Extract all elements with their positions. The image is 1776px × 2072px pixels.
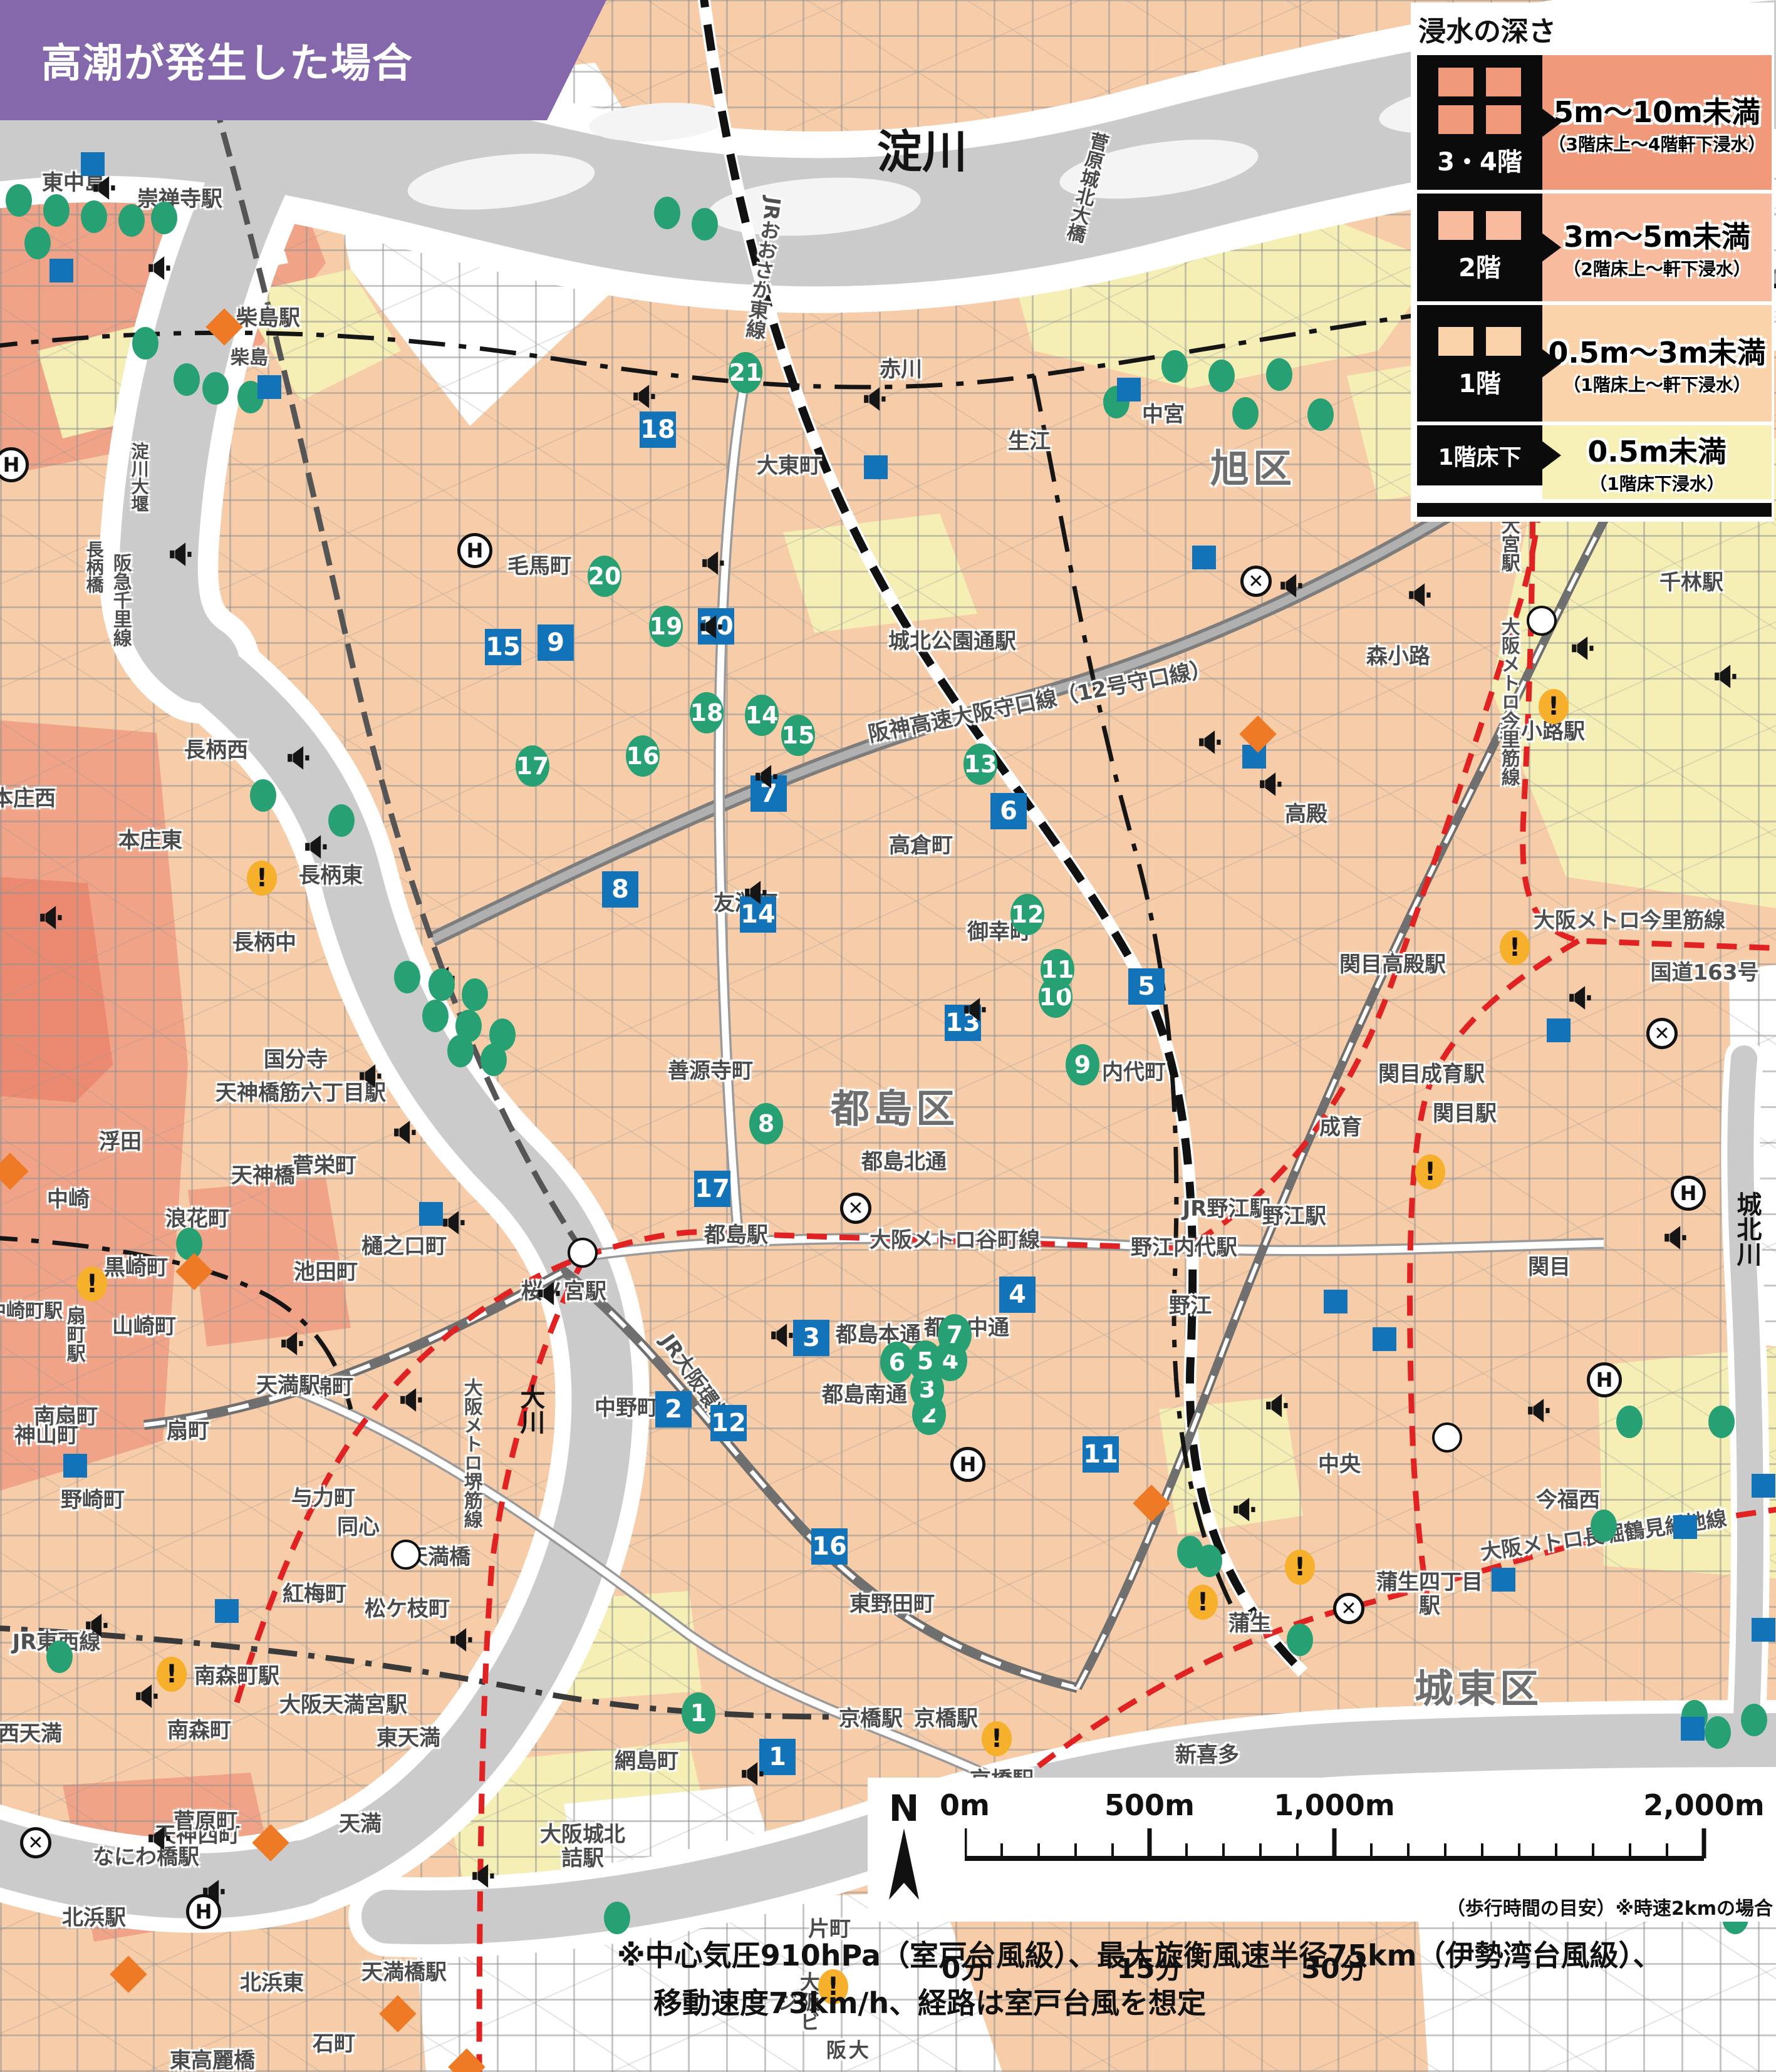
shelter-dot-marker bbox=[1161, 350, 1188, 383]
loudspeaker-marker bbox=[1278, 570, 1309, 601]
building-square-marker bbox=[1681, 1717, 1705, 1741]
building-square-marker bbox=[49, 259, 73, 282]
warning-icon: ! bbox=[982, 1721, 1012, 1756]
building-square-marker bbox=[63, 1454, 87, 1478]
warning-icon: ! bbox=[1415, 1154, 1445, 1189]
shelter-dot-marker bbox=[1266, 358, 1292, 391]
legend-floor-label: 2階 bbox=[1458, 247, 1501, 284]
map-label: 国道163号 bbox=[1651, 961, 1759, 985]
map-label: 新喜多 bbox=[1175, 1743, 1239, 1767]
loudspeaker-marker bbox=[1197, 727, 1228, 758]
map-label: 淀川 bbox=[877, 127, 967, 178]
loudspeaker-marker bbox=[536, 1278, 567, 1309]
map-label: 北浜東 bbox=[240, 1971, 304, 1995]
loudspeaker-icon bbox=[1712, 661, 1743, 692]
map-label: 毛馬町 bbox=[507, 554, 571, 578]
green-numbered-marker: 18 bbox=[690, 692, 724, 733]
map-label: 浮田 bbox=[99, 1130, 142, 1154]
map-label: 黒崎町 bbox=[104, 1256, 168, 1280]
map-label: 都島南通 bbox=[822, 1383, 907, 1407]
loudspeaker-marker bbox=[83, 1610, 115, 1641]
legend-depth-note: （1階床下浸水） bbox=[1542, 470, 1772, 495]
green-numbered-marker: 20 bbox=[588, 556, 621, 597]
loudspeaker-icon bbox=[146, 1823, 177, 1854]
map-label: 森小路 bbox=[1366, 645, 1430, 668]
warning-icon: ! bbox=[1539, 689, 1569, 724]
shelter-dot-marker bbox=[654, 197, 680, 229]
building-square-marker bbox=[1373, 1327, 1396, 1351]
warning-icon: ! bbox=[1285, 1550, 1315, 1585]
loudspeaker-marker bbox=[38, 902, 69, 933]
loudspeaker-marker bbox=[753, 761, 784, 792]
loudspeaker-icon bbox=[146, 252, 177, 284]
hospital-icon: H bbox=[186, 1894, 221, 1929]
building-square-marker bbox=[1192, 546, 1216, 569]
blue-numbered-marker: 4 bbox=[999, 1277, 1036, 1313]
map-label: 山崎町 bbox=[112, 1315, 176, 1339]
loudspeaker-icon bbox=[448, 1624, 479, 1655]
warning-icon: ! bbox=[247, 861, 277, 896]
loudspeaker-icon bbox=[769, 1320, 800, 1351]
loudspeaker-icon bbox=[1569, 633, 1601, 664]
scale-ticks bbox=[965, 1826, 1716, 1863]
map-label: 大阪天満宮駅 bbox=[279, 1693, 407, 1717]
blue-numbered-marker: 5 bbox=[1128, 968, 1165, 1005]
map-label: 千林駅 bbox=[1659, 571, 1723, 594]
loudspeaker-marker bbox=[742, 877, 774, 908]
loudspeaker-icon bbox=[83, 1610, 115, 1641]
shelter-dot-marker bbox=[46, 1640, 73, 1673]
legend-depth-band: 0.5m〜3m未満（1階床上〜軒下浸水） bbox=[1542, 305, 1772, 422]
map-label: 中崎町駅 bbox=[0, 1301, 63, 1322]
loudspeaker-icon bbox=[962, 994, 993, 1025]
map-label: 淀川大堰 bbox=[129, 442, 148, 512]
scale-meter-labels: 0m500m1,000m2,000m bbox=[965, 1788, 1716, 1826]
shelter-dot-marker bbox=[394, 961, 420, 993]
green-numbered-marker: 19 bbox=[649, 606, 683, 647]
map-label: 野崎町 bbox=[61, 1488, 125, 1512]
shelter-dot-marker bbox=[132, 327, 158, 360]
map-label: 菅栄町 bbox=[293, 1154, 356, 1178]
loudspeaker-icon bbox=[861, 383, 893, 415]
map-label: 北浜駅 bbox=[62, 1906, 126, 1930]
loudspeaker-icon bbox=[279, 1328, 310, 1359]
green-numbered-marker: 16 bbox=[626, 735, 660, 777]
station-dot bbox=[568, 1238, 598, 1268]
map-label: 樋之口町 bbox=[361, 1235, 447, 1258]
map-label: 与力町 bbox=[291, 1486, 355, 1510]
hazard-map-page: 淀川寝屋川城北川大川都島区旭区城東区東中島崇禅寺駅柴島駅柴島淀川大堰長柄橋阪急千… bbox=[0, 0, 1776, 2072]
loudspeaker-icon bbox=[398, 1384, 429, 1416]
shelter-dot-marker bbox=[151, 202, 177, 234]
map-label: 天満駅 bbox=[256, 1374, 320, 1397]
loudspeaker-marker bbox=[962, 994, 993, 1025]
loudspeaker-marker bbox=[279, 1328, 310, 1359]
loudspeaker-marker bbox=[392, 1117, 423, 1148]
legend-depth-band: 3m〜5m未満（2階床上〜軒下浸水） bbox=[1542, 194, 1772, 301]
crossed-circle-icon: ✕ bbox=[1240, 566, 1272, 597]
legend-depth-range: 5m〜10m未満 bbox=[1542, 90, 1772, 131]
shelter-dot-marker bbox=[1307, 398, 1334, 431]
loudspeaker-marker bbox=[700, 547, 731, 579]
shelter-dot-marker bbox=[1232, 397, 1259, 430]
blue-numbered-marker: 16 bbox=[811, 1528, 848, 1565]
loudspeaker-icon bbox=[742, 877, 774, 908]
loudspeaker-marker bbox=[146, 252, 177, 284]
station-dot bbox=[1527, 606, 1557, 636]
loudspeaker-icon bbox=[1525, 1395, 1557, 1426]
map-label: 京橋駅 bbox=[839, 1707, 903, 1731]
map-label: 本庄西 bbox=[0, 787, 56, 811]
shelter-dot-marker bbox=[176, 1228, 202, 1260]
map-label: 中宮 bbox=[1142, 403, 1185, 427]
legend-depth-range: 0.5m未満 bbox=[1542, 429, 1772, 470]
map-label: 中野町 bbox=[595, 1396, 658, 1420]
loudspeaker-marker bbox=[1406, 579, 1438, 611]
north-arrow: N bbox=[886, 1790, 922, 1904]
map-label: 大阪メトロ谷町線 bbox=[870, 1228, 1040, 1252]
north-arrow-icon bbox=[886, 1826, 922, 1902]
blue-numbered-marker: 18 bbox=[640, 412, 676, 448]
shelter-dot-marker bbox=[1741, 1704, 1767, 1736]
legend-depth-band: 5m〜10m未満（3階床上〜4階軒下浸水） bbox=[1542, 55, 1772, 190]
hospital-icon: H bbox=[1671, 1176, 1706, 1211]
map-label: 高殿 bbox=[1285, 802, 1327, 826]
loudspeaker-icon bbox=[303, 831, 334, 862]
building-square-marker bbox=[1752, 1618, 1775, 1642]
loudspeaker-marker bbox=[440, 1207, 472, 1238]
loudspeaker-icon bbox=[739, 1758, 771, 1790]
map-label: 菅原町 bbox=[174, 1810, 237, 1833]
loudspeaker-marker bbox=[167, 539, 199, 570]
loudspeaker-marker bbox=[146, 1823, 177, 1854]
map-label: 旭区 bbox=[1210, 447, 1296, 490]
map-label: 扇町駅 bbox=[63, 1306, 85, 1362]
loudspeaker-marker bbox=[448, 1624, 479, 1655]
loudspeaker-icon bbox=[700, 547, 731, 579]
map-label: 大阪メトロ今里筋線 bbox=[1534, 909, 1725, 933]
shelter-dot-marker bbox=[604, 1902, 630, 1934]
green-numbered-marker: 7 bbox=[938, 1314, 972, 1355]
map-label: 赤川 bbox=[880, 358, 922, 381]
loudspeaker-icon bbox=[1257, 769, 1289, 800]
map-label: 京橋駅 bbox=[914, 1707, 978, 1731]
legend-title: 浸水の深さ bbox=[1418, 9, 1772, 49]
map-label: 石町 bbox=[313, 2032, 355, 2056]
loudspeaker-marker bbox=[1257, 769, 1289, 800]
loudspeaker-icon bbox=[1197, 727, 1228, 758]
warning-icon: ! bbox=[1188, 1585, 1218, 1620]
scale-meter-label: 1,000m bbox=[1274, 1788, 1394, 1822]
green-numbered-marker: 1 bbox=[682, 1692, 715, 1734]
map-label: JR野江駅 bbox=[1183, 1197, 1271, 1221]
scale-meter-label: 500m bbox=[1104, 1788, 1195, 1822]
green-numbered-marker: 12 bbox=[1010, 894, 1044, 935]
warning-icon: ! bbox=[157, 1657, 187, 1692]
shelter-dot-marker bbox=[1287, 1624, 1313, 1656]
loudspeaker-marker bbox=[1569, 633, 1601, 664]
crossed-circle-icon: ✕ bbox=[1333, 1593, 1364, 1624]
loudspeaker-icon bbox=[38, 902, 69, 933]
loudspeaker-icon bbox=[167, 539, 199, 570]
map-label: 大阪 bbox=[823, 2038, 868, 2061]
shelter-dot-marker bbox=[447, 1035, 474, 1067]
blue-numbered-marker: 12 bbox=[710, 1405, 747, 1441]
blue-numbered-marker: 6 bbox=[990, 793, 1027, 829]
shelter-dot-marker bbox=[1591, 1510, 1617, 1542]
legend-depth-band: 0.5m未満（1階床下浸水） bbox=[1542, 425, 1772, 499]
shelter-dot-marker bbox=[81, 200, 107, 233]
loudspeaker-marker bbox=[1264, 1390, 1295, 1421]
blue-numbered-marker: 11 bbox=[1083, 1436, 1119, 1473]
loudspeaker-marker bbox=[357, 1060, 388, 1092]
building-square-marker bbox=[1117, 378, 1141, 401]
building-square-marker bbox=[215, 1599, 239, 1623]
map-label: 蒲生 bbox=[1228, 1612, 1271, 1635]
green-numbered-marker: 13 bbox=[963, 743, 997, 785]
legend-floor-label: 1階 bbox=[1458, 363, 1501, 400]
loudspeaker-icon bbox=[1231, 1494, 1262, 1525]
green-numbered-marker: 21 bbox=[729, 352, 762, 393]
green-numbered-marker: 14 bbox=[745, 695, 779, 736]
loudspeaker-marker bbox=[1662, 1222, 1693, 1253]
building-square-marker bbox=[864, 455, 888, 479]
warning-icon: ! bbox=[77, 1267, 107, 1302]
map-label: 都島区 bbox=[831, 1087, 958, 1130]
map-label: 長柄中 bbox=[232, 931, 296, 955]
map-label: 関目駅 bbox=[1433, 1102, 1497, 1126]
map-label: 善源寺町 bbox=[668, 1059, 753, 1083]
legend-depth-note: （2階床上〜軒下浸水） bbox=[1542, 256, 1772, 281]
loudspeaker-icon bbox=[1278, 570, 1309, 601]
loudspeaker-icon bbox=[91, 172, 122, 204]
shelter-dot-marker bbox=[1208, 360, 1235, 392]
map-label: 東天満 bbox=[376, 1726, 440, 1750]
shelter-dot-marker bbox=[422, 1000, 449, 1032]
green-numbered-marker: 9 bbox=[1066, 1044, 1099, 1085]
legend-floor-label: 1階床下 bbox=[1438, 439, 1521, 472]
map-label: 西天満 bbox=[0, 1722, 62, 1746]
building-icon: 2階 bbox=[1417, 194, 1542, 301]
map-label: 長柄西 bbox=[184, 738, 248, 762]
loudspeaker-marker bbox=[303, 831, 334, 862]
map-label: 国分寺 bbox=[264, 1048, 328, 1072]
crossed-circle-icon: ✕ bbox=[1646, 1018, 1678, 1049]
map-label: 関目 bbox=[1528, 1255, 1571, 1279]
scale-bar: 0m500m1,000m2,000m 0分15分30分 bbox=[965, 1788, 1716, 1866]
shelter-dot-marker bbox=[174, 363, 200, 396]
blue-numbered-marker: 17 bbox=[694, 1171, 730, 1207]
building-square-marker bbox=[1752, 1474, 1775, 1498]
shelter-dot-marker bbox=[1708, 1406, 1735, 1438]
hospital-icon: H bbox=[457, 533, 492, 568]
map-label: 崇禅寺駅 bbox=[137, 187, 222, 211]
map-label: 同心 bbox=[337, 1515, 380, 1539]
scale-note: （歩行時間の目安）※時速2kmの場合 bbox=[1446, 1893, 1773, 1920]
loudspeaker-marker bbox=[861, 383, 893, 415]
map-label: 都島駅 bbox=[704, 1223, 768, 1247]
map-label: 関目成育駅 bbox=[1378, 1062, 1485, 1086]
map-label: 天神橋 bbox=[231, 1164, 295, 1188]
map-label: 都島本通 bbox=[836, 1323, 921, 1347]
map-label: 東高麗橋 bbox=[170, 2049, 255, 2072]
building-square-marker bbox=[1547, 1018, 1571, 1042]
building-square-marker bbox=[1324, 1290, 1348, 1313]
loudspeaker-marker bbox=[1231, 1494, 1262, 1525]
shelter-dot-marker bbox=[428, 968, 455, 1001]
scale-meter-label: 2,000m bbox=[1643, 1788, 1764, 1822]
crossed-circle-icon: ✕ bbox=[840, 1193, 871, 1224]
map-label: 本庄東 bbox=[118, 829, 182, 852]
building-square-marker bbox=[1673, 1515, 1697, 1539]
building-icon: 3・4階 bbox=[1417, 55, 1542, 190]
map-label: 大阪城北詰駅 bbox=[536, 1823, 630, 1870]
loudspeaker-icon bbox=[392, 1117, 423, 1148]
north-label: N bbox=[886, 1790, 922, 1826]
loudspeaker-marker bbox=[1567, 982, 1598, 1013]
loudspeaker-icon bbox=[470, 1860, 501, 1892]
loudspeaker-icon bbox=[753, 761, 784, 792]
shelter-dot-marker bbox=[6, 184, 32, 217]
banner-title: 高潮が発生した場合 bbox=[0, 31, 413, 89]
shelter-dot-marker bbox=[462, 978, 488, 1011]
loudspeaker-icon bbox=[631, 381, 662, 412]
footnote-line1: ※中心気圧910hPa（室戸台風級）、最大旋衡風速半径75km（伊勢湾台風級）、 bbox=[617, 1932, 1662, 1980]
map-label: 中崎 bbox=[47, 1188, 90, 1211]
loudspeaker-icon bbox=[536, 1278, 567, 1309]
shelter-dot-marker bbox=[24, 227, 51, 259]
shelter-dot-marker bbox=[328, 804, 355, 837]
map-label: 城東区 bbox=[1415, 1667, 1542, 1710]
shelter-dot-marker bbox=[202, 372, 229, 405]
loudspeaker-icon bbox=[1264, 1390, 1295, 1421]
hospital-icon: H bbox=[1587, 1362, 1622, 1397]
map-label: 大川 bbox=[516, 1384, 544, 1434]
building-square-marker bbox=[257, 375, 281, 399]
green-numbered-marker: 6 bbox=[880, 1342, 914, 1383]
scale-meter-label: 0m bbox=[940, 1788, 990, 1822]
footnote-line2: 移動速度73km/h、経路は室戸台風を想定 bbox=[617, 1980, 1662, 2028]
storm-surge-banner: 高潮が発生した場合 bbox=[0, 0, 606, 120]
loudspeaker-marker bbox=[769, 1320, 800, 1351]
map-label: 池田町 bbox=[294, 1260, 358, 1284]
building-square-marker bbox=[81, 152, 105, 176]
map-label: 成育 bbox=[1319, 1116, 1362, 1139]
hospital-icon: H bbox=[950, 1447, 985, 1482]
legend-bottom-bar bbox=[1417, 503, 1772, 517]
map-label: 都島北通 bbox=[861, 1150, 947, 1174]
map-label: 南森町 bbox=[167, 1719, 231, 1743]
map-label: 紅梅町 bbox=[283, 1582, 346, 1606]
building-square-marker bbox=[1492, 1568, 1515, 1592]
loudspeaker-marker bbox=[91, 172, 122, 204]
loudspeaker-icon bbox=[285, 742, 316, 774]
blue-numbered-marker: 2 bbox=[655, 1391, 692, 1427]
green-numbered-marker: 11 bbox=[1041, 949, 1074, 990]
loudspeaker-marker bbox=[398, 1384, 429, 1416]
map-label: 高倉町 bbox=[889, 834, 953, 857]
station-dot bbox=[391, 1540, 421, 1570]
map-label: 網島町 bbox=[615, 1749, 678, 1773]
green-numbered-marker: 8 bbox=[749, 1103, 783, 1144]
map-label: 松ケ枝町 bbox=[365, 1597, 450, 1621]
map-label: 城北川 bbox=[1733, 1191, 1761, 1267]
legend-row: 1階0.5m〜3m未満（1階床上〜軒下浸水） bbox=[1417, 305, 1772, 422]
loudspeaker-icon bbox=[440, 1207, 472, 1238]
legend-row: 2階3m〜5m未満（2階床上〜軒下浸水） bbox=[1417, 194, 1772, 301]
map-label: 浪花町 bbox=[165, 1207, 229, 1231]
loudspeaker-icon bbox=[357, 1060, 388, 1092]
crossed-circle-icon: ✕ bbox=[20, 1827, 51, 1858]
map-label: 野江内代駅 bbox=[1131, 1236, 1237, 1260]
loudspeaker-icon bbox=[1406, 579, 1438, 611]
map-label: 内代町 bbox=[1102, 1060, 1166, 1084]
green-numbered-marker: 17 bbox=[516, 745, 549, 787]
loudspeaker-marker bbox=[285, 742, 316, 774]
map-label: 天満 bbox=[339, 1812, 382, 1836]
map-label: 南森町駅 bbox=[194, 1664, 279, 1688]
legend-floor-label: 3・4階 bbox=[1437, 142, 1522, 178]
legend-row: 3・4階5m〜10m未満（3階床上〜4階軒下浸水） bbox=[1417, 55, 1772, 190]
loudspeaker-marker bbox=[1525, 1395, 1557, 1426]
loudspeaker-marker bbox=[698, 611, 729, 643]
legend-depth-range: 3m〜5m未満 bbox=[1542, 214, 1772, 256]
loudspeaker-marker bbox=[631, 381, 662, 412]
warning-icon: ! bbox=[1500, 930, 1530, 965]
building-icon: 1階 bbox=[1417, 305, 1542, 422]
legend-depth-note: （3階床上〜4階軒下浸水） bbox=[1542, 131, 1772, 156]
shelter-dot-marker bbox=[480, 1044, 507, 1076]
map-label: 生江 bbox=[1008, 430, 1051, 453]
map-label: 長柄橋 bbox=[84, 541, 103, 593]
map-label: 中央 bbox=[1318, 1453, 1361, 1476]
blue-numbered-marker: 9 bbox=[537, 624, 574, 661]
map-label: 柴島駅 bbox=[236, 306, 300, 330]
shelter-dot-marker bbox=[692, 208, 718, 241]
shelter-dot-marker bbox=[43, 194, 70, 227]
shelter-dot-marker bbox=[1616, 1406, 1643, 1438]
map-label: 蒲生四丁目駅 bbox=[1376, 1570, 1483, 1618]
legend-depth-note: （1階床上〜軒下浸水） bbox=[1542, 371, 1772, 396]
loudspeaker-icon bbox=[1662, 1222, 1693, 1253]
map-label: 神山町 bbox=[14, 1424, 78, 1448]
loudspeaker-icon bbox=[698, 611, 729, 643]
legend-row: 1階床下0.5m未満（1階床下浸水） bbox=[1417, 425, 1772, 499]
building-square-marker bbox=[419, 1202, 443, 1226]
shelter-dot-marker bbox=[1196, 1545, 1222, 1577]
shelter-dot-marker bbox=[1705, 1716, 1731, 1749]
map-label: 柴島 bbox=[231, 348, 268, 369]
blue-numbered-marker: 8 bbox=[602, 871, 638, 908]
map-label: 大東町 bbox=[757, 454, 821, 478]
map-label: 野江 bbox=[1169, 1294, 1212, 1318]
legend-depth-range: 0.5m〜3m未満 bbox=[1542, 330, 1772, 371]
loudspeaker-marker bbox=[1712, 661, 1743, 692]
footnote: ※中心気圧910hPa（室戸台風級）、最大旋衡風速半径75km（伊勢湾台風級）、… bbox=[617, 1932, 1662, 2028]
map-label: 扇町 bbox=[167, 1419, 209, 1443]
map-label: 関目高殿駅 bbox=[1339, 953, 1446, 976]
flood-depth-legend: 浸水の深さ 3・4階5m〜10m未満（3階床上〜4階軒下浸水）2階3m〜5m未満… bbox=[1411, 3, 1774, 522]
shelter-dot-marker bbox=[118, 204, 145, 237]
loudspeaker-marker bbox=[470, 1860, 501, 1892]
building-icon: 1階床下 bbox=[1417, 425, 1542, 485]
blue-numbered-marker: 15 bbox=[485, 629, 521, 665]
loudspeaker-marker bbox=[739, 1758, 771, 1790]
map-label: 大阪メトロ堺筋線 bbox=[460, 1378, 482, 1528]
shelter-dot-marker bbox=[250, 779, 276, 812]
map-label: 野江駅 bbox=[1262, 1204, 1326, 1228]
green-numbered-marker: 15 bbox=[781, 715, 815, 756]
